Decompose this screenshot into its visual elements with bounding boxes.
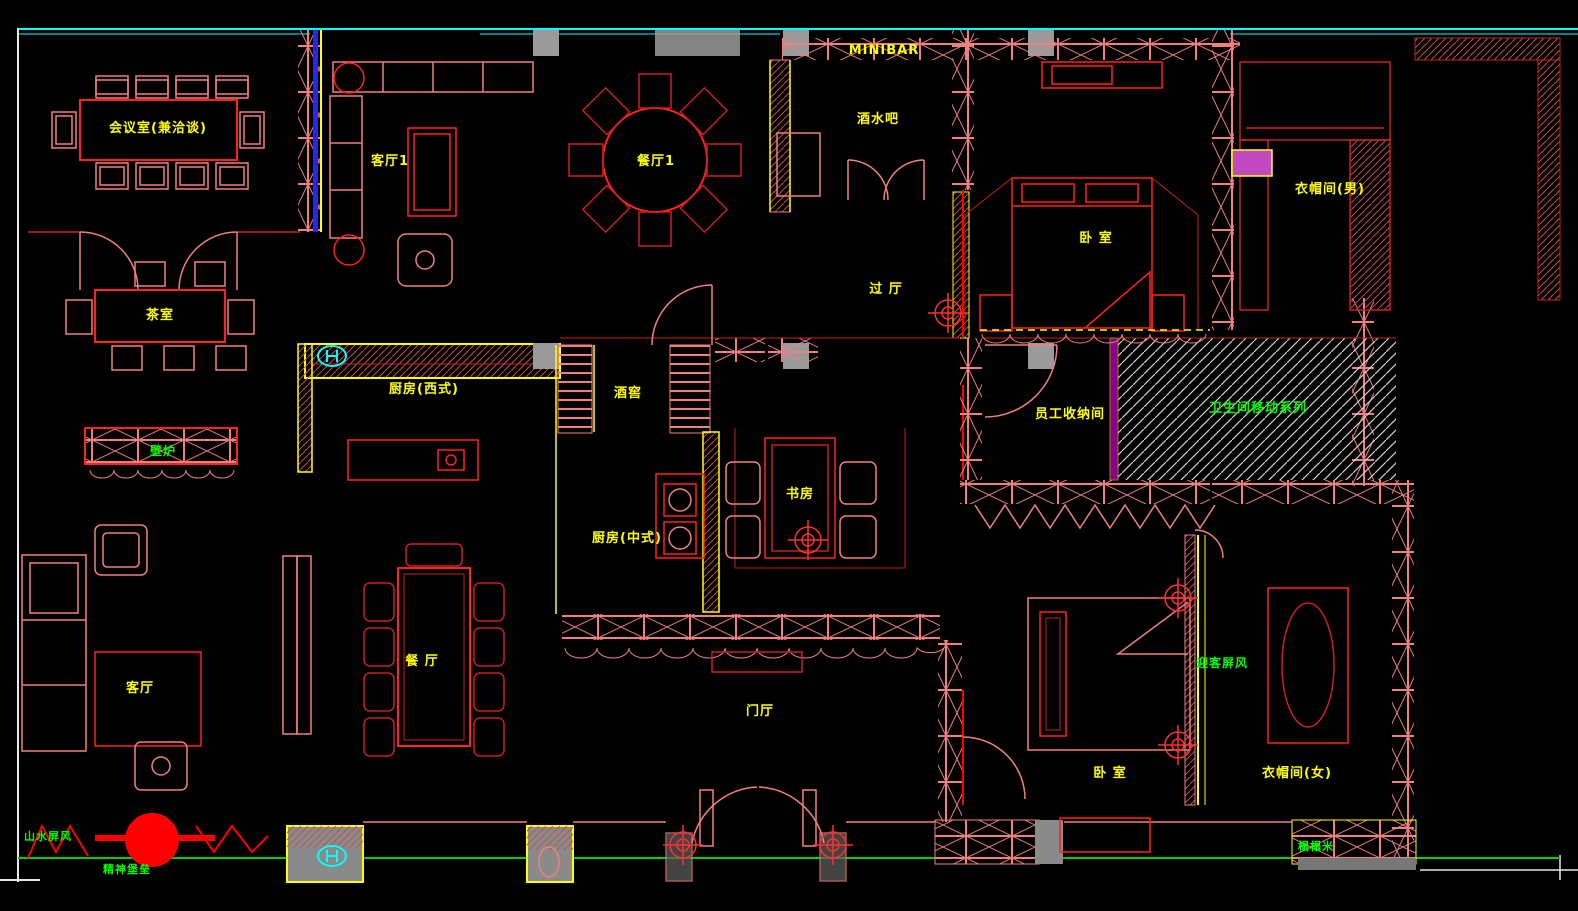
- cad-drawing-canvas[interactable]: 会议室(兼洽谈)客厅1餐厅1MINIBAR酒水吧衣帽间(男)卧 室过 厅茶室厨房…: [0, 0, 1578, 911]
- room-label-welcome-screen: 迎客屏风: [1196, 655, 1248, 670]
- wall-pier: [935, 820, 1039, 864]
- bar-counter: [1042, 62, 1162, 88]
- symbols: [318, 293, 1198, 877]
- room-label-staff-storage: 员工收纳间: [1035, 406, 1105, 422]
- stairs: [670, 345, 710, 433]
- stove: [656, 474, 704, 558]
- room-label-tatami: 榻榻米: [1298, 839, 1334, 853]
- room-label-dining-room-1: 餐厅1: [636, 153, 675, 169]
- room-label-cloakroom-female: 衣帽间(女): [1262, 765, 1332, 781]
- sofa-set-1: [330, 62, 533, 286]
- room-label-drinks-bar: 酒水吧: [857, 111, 899, 127]
- stairs: [558, 345, 592, 433]
- kitchen-island: [348, 440, 478, 480]
- room-label-minibar: MINIBAR: [849, 43, 919, 58]
- room-label-passage-hall: 过 厅: [869, 281, 903, 297]
- sofa-set-main: [22, 525, 311, 790]
- room-label-kitchen-west: 厨房(西式): [389, 381, 459, 397]
- room-label-bedroom-top: 卧 室: [1079, 230, 1113, 246]
- double-door-top: [848, 160, 924, 200]
- room-label-bathroom-series: 卫生间移动系列: [1209, 400, 1307, 416]
- room-label-kitchen-chinese: 厨房(中式): [592, 530, 662, 546]
- room-label-wine-cellar: 酒窖: [614, 385, 642, 401]
- room-label-landscape-screen: 山水屏风: [24, 829, 72, 843]
- room-label-living-room: 客厅: [126, 680, 154, 696]
- room-label-spirit-totem: 精神堡垒: [103, 862, 151, 876]
- closet-door-symbols: [975, 505, 1215, 528]
- cloakroom-female-wardrobe: [1268, 588, 1348, 743]
- room-label-entrance-hall: 门厅: [746, 703, 774, 719]
- bed-top: [965, 178, 1210, 343]
- entry-mat: [712, 652, 802, 672]
- entrance-double-door: [692, 787, 824, 843]
- room-label-fireplace: 壁炉: [150, 443, 176, 458]
- room-label-dining-room: 餐 厅: [404, 653, 439, 669]
- room-label-study: 书房: [786, 486, 814, 502]
- bed-bottom: [1028, 598, 1190, 852]
- doors: [28, 160, 1223, 881]
- room-label-tea-room: 茶室: [146, 307, 174, 323]
- dining-table-main: [364, 544, 504, 756]
- wall-pier: [533, 30, 559, 56]
- room-label-cloakroom-male: 衣帽间(男): [1295, 181, 1365, 197]
- room-label-meeting-room: 会议室(兼洽谈): [109, 120, 207, 136]
- room-label-bedroom-bottom: 卧 室: [1093, 765, 1127, 781]
- room-label-living-room-1: 客厅1: [371, 153, 409, 169]
- wall-pier: [655, 30, 740, 56]
